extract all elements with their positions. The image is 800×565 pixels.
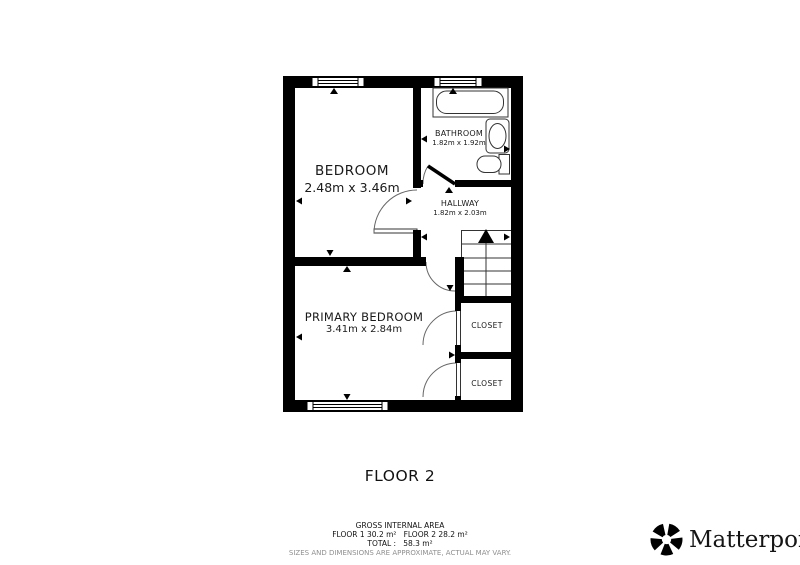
closet-2-door-arc-icon <box>423 363 457 397</box>
matterport-logo-icon <box>650 523 683 556</box>
dimension-arrow-icon <box>344 394 351 400</box>
bathtub-icon <box>433 88 508 117</box>
dimension-arrow-icon <box>421 136 427 143</box>
window-bedroom-top <box>312 78 364 87</box>
matterport-logo-text: Matterport® <box>689 527 800 553</box>
room-label-closet-2: CLOSET <box>471 379 503 388</box>
room-dimensions: 1.82m x 2.03m <box>433 209 486 218</box>
room-name: BATHROOM <box>432 129 485 139</box>
floor-title: FLOOR 2 <box>365 467 435 485</box>
room-name: CLOSET <box>471 321 503 330</box>
dimension-arrow-icon <box>406 198 412 205</box>
room-dimensions: 2.48m x 3.46m <box>304 180 399 196</box>
stairs-up-arrow-icon <box>478 229 494 243</box>
wall-closet-front-1 <box>455 303 461 311</box>
window-bathroom-top <box>434 78 482 87</box>
wall-closet-front-4 <box>455 396 461 401</box>
room-label-primary-bedroom: PRIMARY BEDROOM 3.41m x 2.84m <box>305 310 424 337</box>
wall-closet-front-2 <box>455 345 461 359</box>
wall-bathroom-hallway-right <box>455 180 511 187</box>
dimension-arrow-icon <box>504 234 510 241</box>
matterport-branding: Matterport® <box>650 523 800 556</box>
brand-name: Matterport <box>689 527 800 553</box>
wall-closet-top <box>455 296 511 303</box>
dimension-arrow-icon <box>343 266 351 272</box>
room-name: BEDROOM <box>304 163 399 180</box>
floor-plan-page: BEDROOM 2.48m x 3.46m BATHROOM 1.82m x 1… <box>0 0 800 565</box>
dimension-arrow-icon <box>296 334 302 341</box>
toilet-icon <box>477 155 510 175</box>
dimension-arrow-icon <box>449 352 455 359</box>
wall-closet-front-3 <box>455 359 461 363</box>
window-primary-bottom <box>307 402 388 411</box>
room-name: CLOSET <box>471 379 503 388</box>
room-dimensions: 3.41m x 2.84m <box>305 324 424 337</box>
dimension-arrow-icon <box>421 234 427 241</box>
bedroom-door-leaf <box>374 229 417 233</box>
room-name: HALLWAY <box>433 199 486 209</box>
closet-1-door-arc-icon <box>423 311 457 345</box>
wall-bedroom-bathroom <box>413 86 421 188</box>
dimension-arrow-icon <box>296 198 302 205</box>
dimension-arrow-icon <box>445 187 453 193</box>
room-dimensions: 1.82m x 1.92m <box>432 139 485 148</box>
wall-bathroom-hallway-left <box>413 180 423 187</box>
dimension-arrow-icon <box>330 88 338 94</box>
wall-closet-divider <box>461 352 511 359</box>
wall-right <box>511 76 523 412</box>
room-label-bedroom: BEDROOM 2.48m x 3.46m <box>304 163 399 196</box>
room-label-bathroom: BATHROOM 1.82m x 1.92m <box>432 129 485 148</box>
dimension-arrow-icon <box>327 250 334 256</box>
wall-bedroom-primary <box>290 257 426 266</box>
wall-left <box>283 76 295 412</box>
room-name: PRIMARY BEDROOM <box>305 310 424 324</box>
bathroom-door-leaf <box>428 166 455 184</box>
bedroom-door-arc-icon <box>374 190 417 233</box>
room-label-hallway: HALLWAY 1.82m x 2.03m <box>433 199 486 218</box>
bathroom-door-arc-icon <box>423 166 428 184</box>
room-label-closet-1: CLOSET <box>471 321 503 330</box>
stairs <box>462 229 512 296</box>
